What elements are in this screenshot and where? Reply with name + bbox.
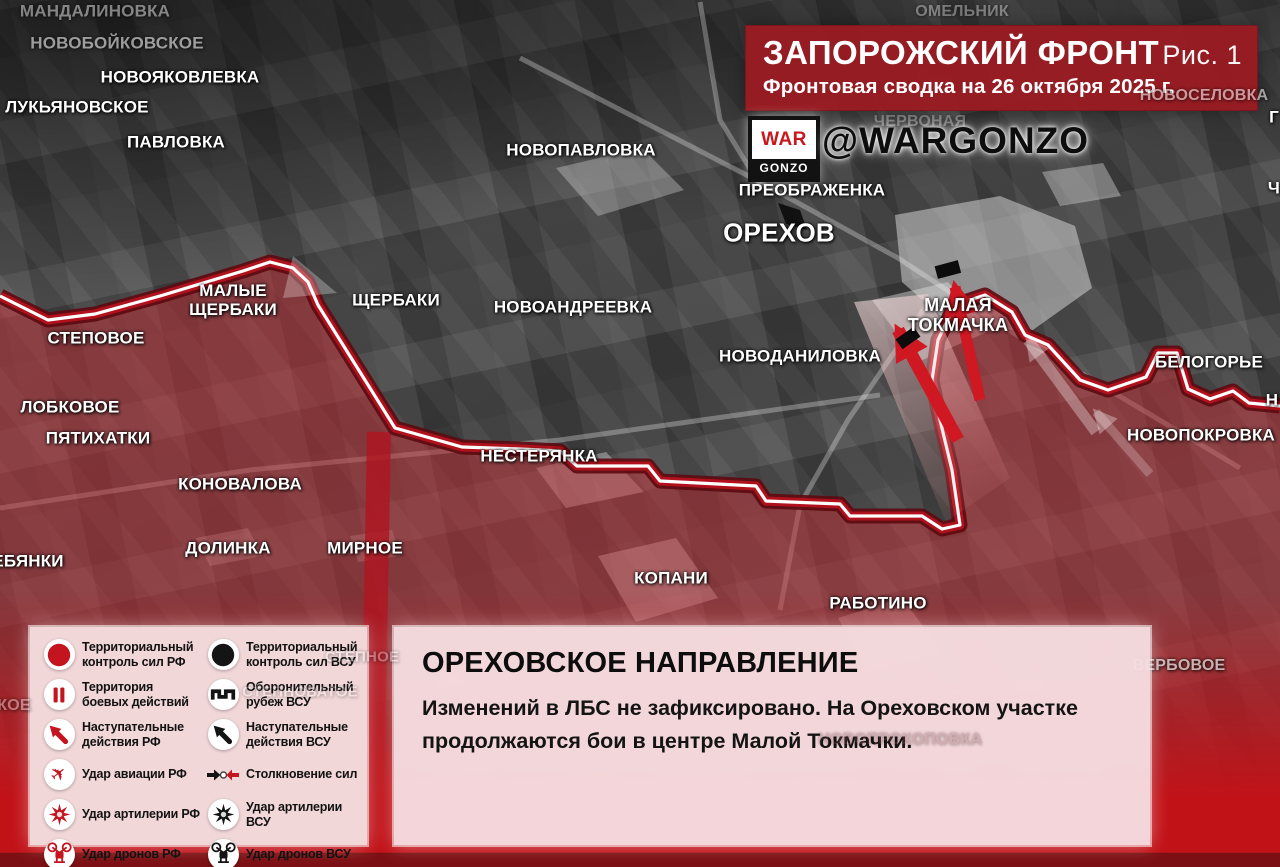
legend-label: Наступательные действия РФ (82, 720, 200, 749)
legend-panel: Территориальный контроль сил РФТерритори… (30, 627, 367, 845)
afu-defense-line-icon (208, 679, 239, 710)
rf-airstrike-icon: ✈ (44, 759, 75, 790)
legend-label: Наступательные действия ВСУ (246, 720, 365, 749)
title-banner: ЗАПОРОЖСКИЙ ФРОНТ Рис. 1 Фронтовая сводк… (745, 25, 1258, 111)
legend-label: Территория боевых действий (82, 680, 200, 709)
legend-label: Удар дронов ВСУ (246, 847, 365, 861)
legend-label: Удар дронов РФ (82, 847, 200, 861)
afu-drones-icon (208, 839, 239, 867)
forces-clash-icon (206, 759, 240, 790)
legend-label: Столкновение сил (246, 767, 365, 781)
map-title: ЗАПОРОЖСКИЙ ФРОНТ (763, 34, 1159, 72)
rf-south-arrow-band (371, 432, 379, 867)
afu-territorial-control-icon (208, 639, 239, 670)
rf-advance-icon (44, 719, 75, 750)
rf-artillery-icon (44, 799, 75, 830)
map-subtitle: Фронтовая сводка на 26 октября 2025 г. (763, 75, 1242, 99)
report-title: ОРЕХОВСКОЕ НАПРАВЛЕНИЕ (422, 647, 1122, 680)
wargonzo-logo: WAR GONZO (748, 116, 820, 182)
rf-drones-icon (44, 839, 75, 867)
combat-zone-icon (44, 679, 75, 710)
report-text: Изменений в ЛБС не зафиксировано. На Оре… (422, 692, 1122, 757)
legend-label: Оборонительный рубеж ВСУ (246, 680, 365, 709)
logo-war-text: WAR (761, 120, 807, 159)
legend-label: Территориальный контроль сил ВСУ (246, 640, 365, 669)
rf-territorial-control-icon (44, 639, 75, 670)
legend-label: Удар артилерии ВСУ (246, 800, 365, 829)
telegram-handle: @WARGONZO (822, 120, 1089, 162)
legend-label: Удар артилерии РФ (82, 807, 200, 821)
afu-advance-icon (208, 719, 239, 750)
report-panel: ОРЕХОВСКОЕ НАПРАВЛЕНИЕ Изменений в ЛБС н… (394, 627, 1150, 845)
war-map-screenshot: МАНДАЛИНОВКАНОВОБОЙКОВСКОЕНОВОЯКОВЛЕВКАЛ… (0, 0, 1280, 867)
legend-label: Территориальный контроль сил РФ (82, 640, 200, 669)
legend-label: Удар авиации РФ (82, 767, 200, 781)
logo-gonzo-text: GONZO (752, 159, 816, 178)
legend-grid: Территориальный контроль сил РФТерритори… (42, 639, 357, 867)
figure-label: Рис. 1 (1162, 40, 1242, 71)
afu-artillery-icon (208, 799, 239, 830)
